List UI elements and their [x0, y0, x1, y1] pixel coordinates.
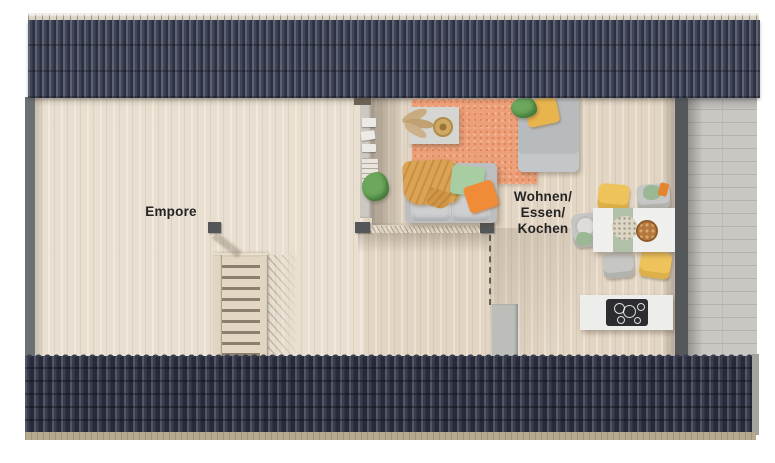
room-label-line: Kochen	[495, 221, 591, 237]
potted-plant	[362, 172, 389, 201]
wall-shelf	[362, 144, 376, 152]
stair-treads	[222, 257, 260, 359]
flower-centerpiece	[612, 216, 638, 240]
railing-floor-shadow	[358, 233, 490, 253]
staircase	[214, 253, 268, 357]
railing-post	[208, 222, 221, 233]
roof-eave-strip	[25, 432, 756, 440]
burner	[623, 305, 636, 318]
overhead-edge-dashed-line	[489, 235, 491, 305]
decor-tray	[433, 117, 453, 137]
roof-surface-top	[28, 20, 760, 98]
room-label-line: Wohnen/	[495, 189, 591, 205]
dining-chair-gray	[602, 250, 636, 279]
exterior-wall-left	[25, 97, 35, 358]
room-label-line: Essen/	[495, 205, 591, 221]
left-wall-shadow	[35, 97, 44, 358]
empore-floor	[35, 97, 362, 358]
roof-edge-cap	[752, 354, 759, 435]
burner	[634, 317, 641, 324]
dining-chair-yellow	[638, 249, 672, 280]
stair-stringer-left	[214, 255, 222, 357]
burner	[637, 303, 645, 311]
cooktop	[606, 299, 648, 326]
room-label-wohnen-essen-kochen: Wohnen/ Essen/ Kochen	[495, 189, 591, 237]
potted-plant	[511, 97, 537, 118]
exterior-wall-right	[675, 97, 688, 358]
railing-bracket-left	[355, 222, 370, 233]
floor-plan-canvas: Empore Wohnen/ Essen/ Kochen	[0, 0, 775, 463]
burner	[617, 316, 625, 324]
dining-chair-yellow	[597, 183, 630, 212]
wall-shelf	[362, 118, 376, 127]
stair-railing-shadow	[268, 255, 298, 357]
exterior-brick-strip	[688, 97, 757, 357]
food-platter	[636, 220, 658, 242]
roof-surface-bottom	[25, 356, 756, 433]
wall-shelf	[360, 130, 375, 141]
railing-bracket-right	[480, 222, 494, 233]
stair-stringer-right	[260, 255, 268, 357]
wall-stub	[492, 304, 518, 357]
room-label-empore: Empore	[131, 204, 211, 220]
